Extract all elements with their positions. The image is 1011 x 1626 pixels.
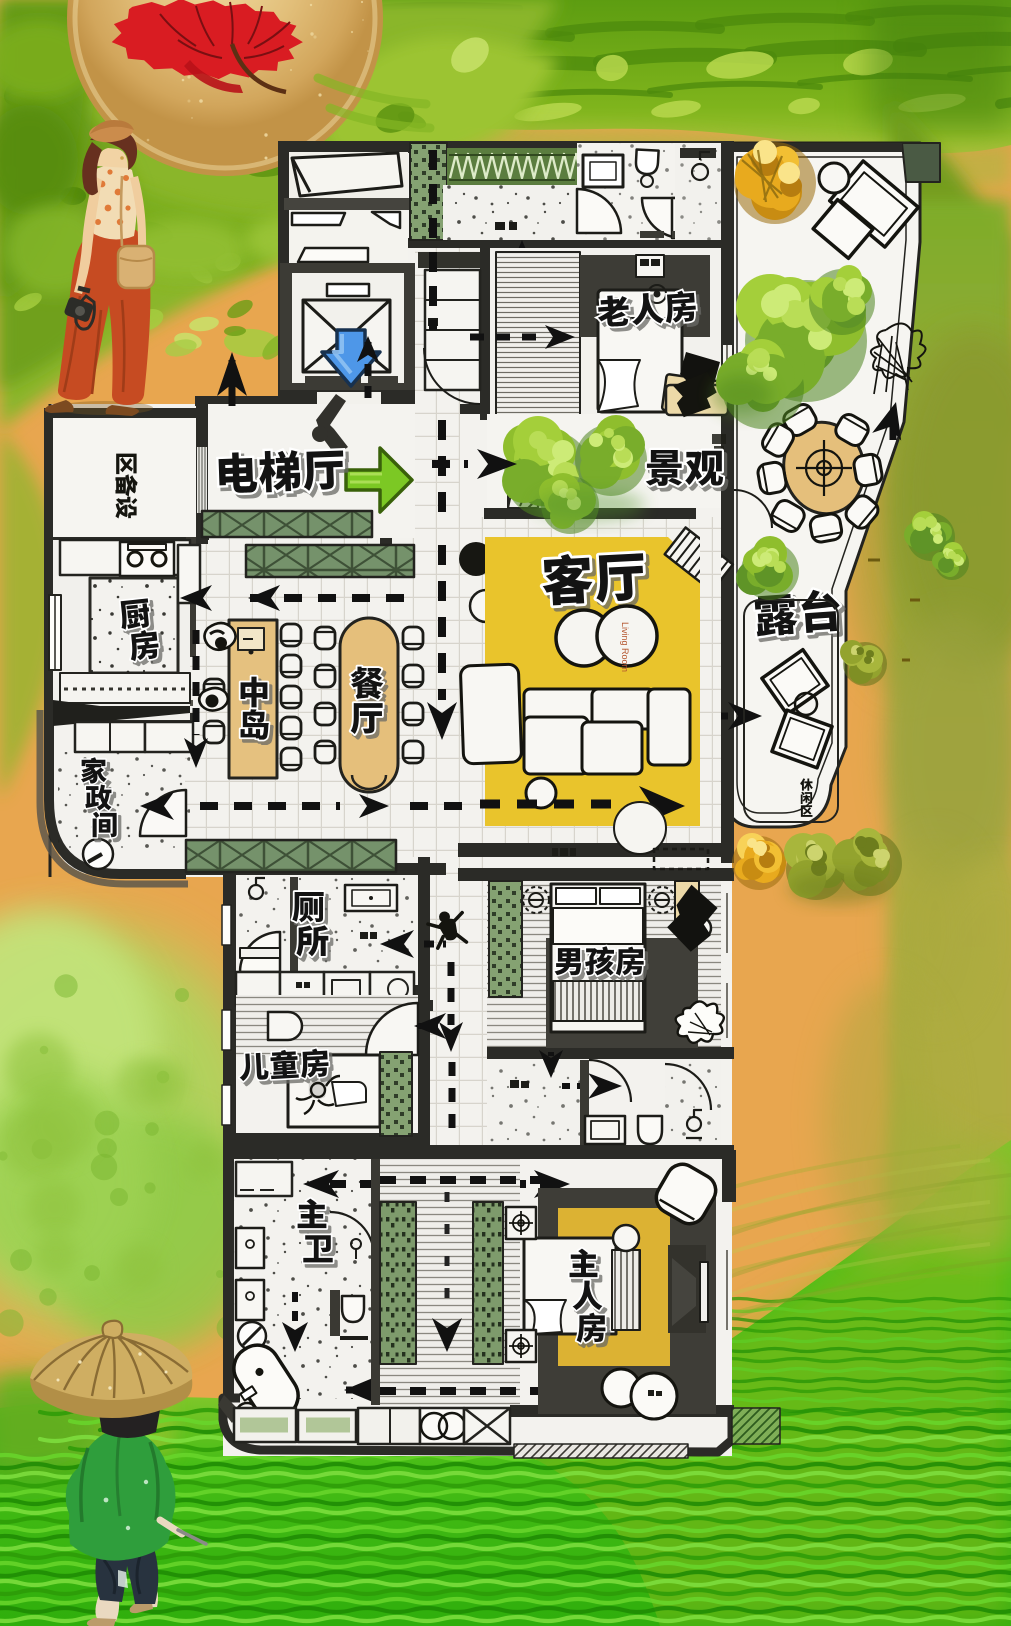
svg-text:Living Room: Living Room [620, 622, 630, 672]
